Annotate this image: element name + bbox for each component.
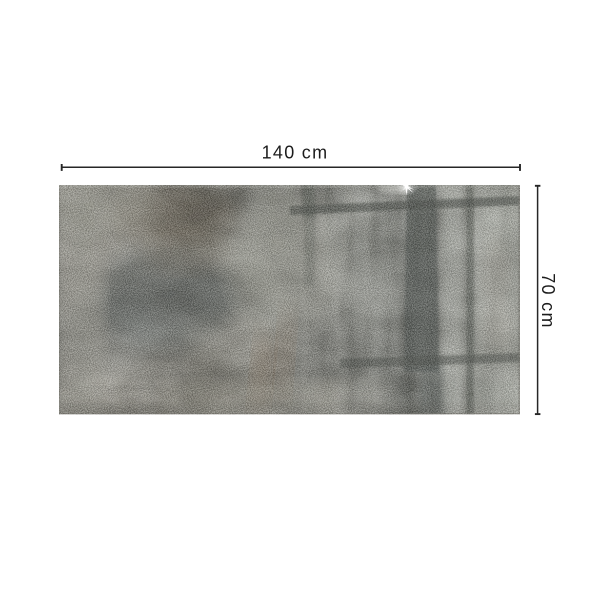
svg-text:140 cm: 140 cm (262, 143, 329, 163)
svg-text:70 cm: 70 cm (538, 273, 558, 329)
